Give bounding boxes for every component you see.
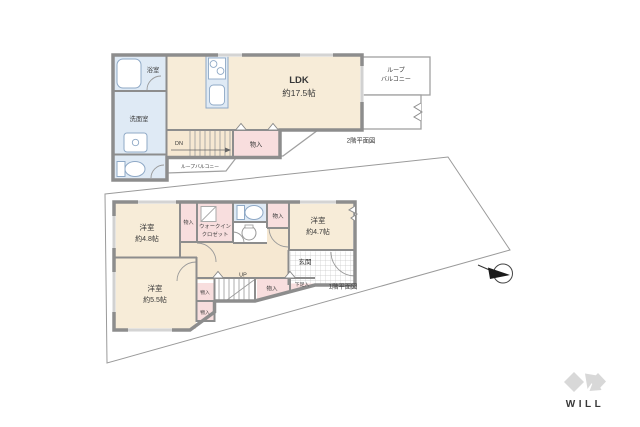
floor-plan-2f: ループ バルコニー ループバルコニー DN [113,53,430,180]
floorplan-page: ループ バルコニー ループバルコニー DN [0,0,640,427]
label-storage-2f: 物入 [250,140,263,149]
label-bedroom-48: 洋室 [140,222,155,232]
roof-balcony-side-strip [362,95,422,129]
washbasin-icon [124,133,147,152]
label-storage-c: 物入 [266,285,278,293]
label-bath: 浴室 [147,65,160,74]
kitchen-counter [206,56,228,108]
label-plan-1f: 1階平面図 [329,282,358,291]
logo-text: WILL [566,399,604,410]
roof-balcony-bottom: ループバルコニー [167,158,236,173]
label-bedroom-48-size: 約4.8帖 [135,234,159,243]
toilet-icon-1f [237,206,263,220]
roof-balcony-top: ループ バルコニー [362,57,430,95]
logo-diamond-left [564,372,584,392]
room-bedroom-47 [289,203,353,250]
label-bedroom-47: 洋室 [311,215,326,225]
label-storage-b: 物入 [272,212,284,220]
sink-icon [210,85,225,105]
roof-balcony-corner [280,130,318,156]
roof-balcony-bottom-label: ループバルコニー [181,164,219,170]
label-washroom: 洗面室 [130,114,149,123]
roof-balcony-label-2: バルコニー [381,76,411,83]
label-ldk-size: 約17.5帖 [282,88,316,98]
floorplan-canvas: ループ バルコニー ループバルコニー DN [0,0,640,427]
toilet-icon-2f [117,162,145,177]
label-ldk: LDK [289,75,309,86]
label-bedroom-55-size: 約5.5帖 [143,295,167,304]
label-storage-d: 物入 [200,289,210,296]
wic-hatch-icon [201,207,216,222]
bathtub-icon [117,59,141,88]
label-wic-1: ウォークイン [199,222,231,230]
room-bedroom-55 [114,258,196,329]
will-logo: WILL [564,372,606,410]
room-ldk [166,56,361,129]
label-storage-e: 物入 [200,309,210,316]
label-wic-2: クロゼット [202,230,229,238]
label-entrance: 玄関 [299,257,312,266]
stairs-dn-label: DN [175,141,183,147]
label-bedroom-55: 洋室 [148,283,163,293]
floor-plan-1f: UP [105,157,510,363]
north-compass-icon [478,264,513,283]
label-storage-a: 物入 [183,219,193,226]
label-shoe-box: 下足入 [295,282,310,288]
label-bedroom-47-size: 約4.7帖 [306,227,330,236]
roof-balcony-label-1: ループ [387,67,405,74]
label-plan-2f: 2階平面図 [347,136,376,145]
